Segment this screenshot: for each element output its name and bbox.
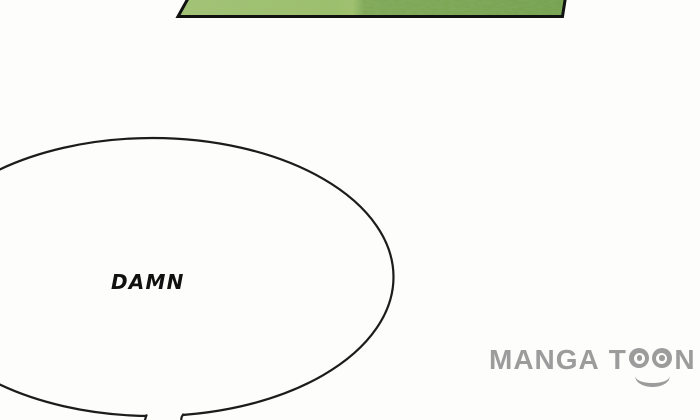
speech-bubble-outline <box>0 138 394 416</box>
watermark-eye-ring <box>634 353 645 364</box>
watermark-text-t: T <box>609 346 627 374</box>
watermark-text-manga: MANGA <box>489 346 600 374</box>
speech-bubble-tail-right <box>181 415 183 420</box>
speech-bubble-tail-gap <box>146 411 182 420</box>
grass-panel <box>172 0 572 20</box>
watermark-eye-icon <box>629 348 649 368</box>
watermark-eye-pupil-icon <box>659 355 665 361</box>
watermark-eye-ring <box>656 353 667 364</box>
speech-bubble <box>0 138 394 420</box>
comic-page: DAMN MANGA T N <box>0 0 700 420</box>
watermark-eye-pupil-icon <box>637 355 643 361</box>
speech-text: DAMN <box>111 270 185 294</box>
watermark-text-n: N <box>674 346 695 374</box>
watermark-eye-icon <box>652 348 672 368</box>
mangatoon-watermark: MANGA T N <box>489 346 696 374</box>
